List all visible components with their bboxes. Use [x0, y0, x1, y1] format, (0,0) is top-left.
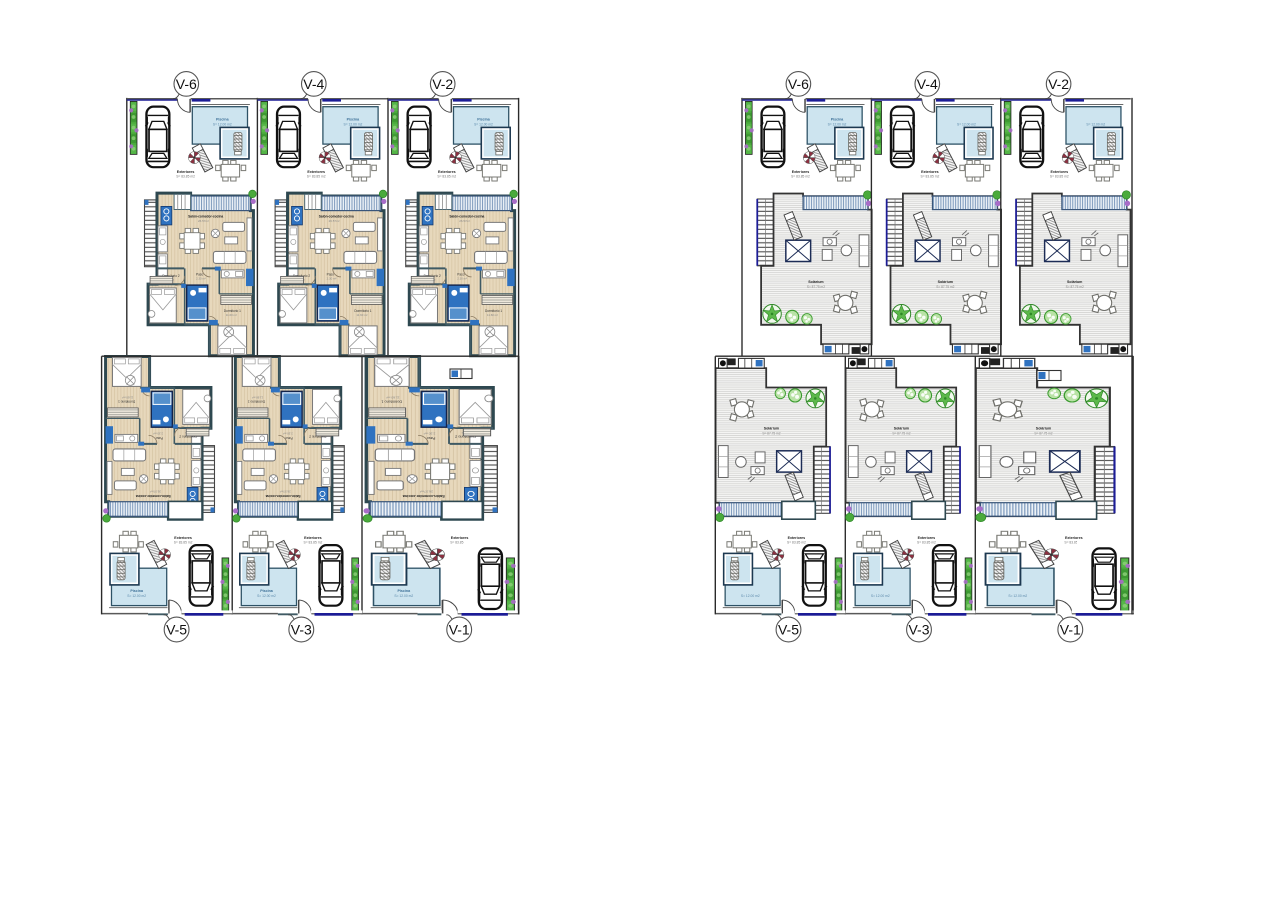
svg-text:S= 83.85 m2: S= 83.85 m2 — [174, 541, 193, 545]
svg-text:V-1: V-1 — [449, 622, 470, 638]
svg-text:V-1: V-1 — [1060, 622, 1081, 638]
svg-text:S= 12.00 m2: S= 12.00 m2 — [741, 594, 760, 598]
svg-text:Exteriores: Exteriores — [921, 170, 939, 174]
svg-text:S= 87.75 m2: S= 87.75 m2 — [1034, 431, 1052, 435]
svg-text:S= 83.85 m2: S= 83.85 m2 — [921, 175, 940, 179]
svg-text:Solárium: Solárium — [764, 426, 779, 430]
svg-text:S= 12.00 m2: S= 12.00 m2 — [828, 123, 847, 127]
svg-text:Exteriores: Exteriores — [174, 536, 192, 540]
svg-text:Piscina: Piscina — [260, 589, 274, 593]
svg-text:Solárium: Solárium — [938, 280, 953, 284]
svg-text:S= 12.00 m2: S= 12.00 m2 — [474, 123, 493, 127]
svg-text:V-4: V-4 — [303, 76, 324, 92]
svg-text:Piscina: Piscina — [130, 589, 144, 593]
svg-text:S= 87.75 m2: S= 87.75 m2 — [762, 431, 780, 435]
svg-text:S= 83.85 m2: S= 83.85 m2 — [791, 175, 810, 179]
svg-text:Piscina: Piscina — [831, 118, 845, 122]
svg-text:S= 83.85 m2: S= 83.85 m2 — [176, 175, 195, 179]
svg-text:Solárium: Solárium — [894, 426, 909, 430]
svg-text:V-5: V-5 — [778, 622, 799, 638]
svg-text:S= 12.00 m2: S= 12.00 m2 — [871, 594, 890, 598]
svg-text:S= 12.00 m2: S= 12.00 m2 — [1008, 594, 1027, 598]
svg-text:Piscina: Piscina — [347, 118, 361, 122]
svg-text:Piscina: Piscina — [477, 118, 491, 122]
svg-text:S= 12.00 m2: S= 12.00 m2 — [127, 594, 146, 598]
svg-text:Solárium: Solárium — [1036, 426, 1051, 430]
svg-text:S= 87.75 m2: S= 87.75 m2 — [936, 285, 954, 289]
svg-text:V-5: V-5 — [166, 622, 187, 638]
svg-text:Exteriores: Exteriores — [918, 536, 936, 540]
svg-text:S= 83.85 m2: S= 83.85 m2 — [1050, 175, 1069, 179]
svg-text:S= 83.85 m2: S= 83.85 m2 — [304, 541, 323, 545]
svg-text:S= 12.00 m2: S= 12.00 m2 — [344, 123, 363, 127]
svg-text:Exteriores: Exteriores — [304, 536, 322, 540]
svg-text:S= 83.85 m2: S= 83.85 m2 — [307, 175, 326, 179]
svg-text:S= 87.75 m2: S= 87.75 m2 — [892, 431, 910, 435]
svg-text:S= 87.75 m2: S= 87.75 m2 — [807, 285, 825, 289]
svg-text:V-3: V-3 — [291, 622, 312, 638]
svg-text:Solárium: Solárium — [1067, 280, 1082, 284]
svg-text:S= 83.85 m2: S= 83.85 m2 — [437, 175, 456, 179]
svg-text:V-6: V-6 — [176, 76, 197, 92]
svg-text:S= 12.00 m2: S= 12.00 m2 — [213, 123, 232, 127]
svg-text:S= 12.00 m2: S= 12.00 m2 — [957, 123, 976, 127]
svg-text:Exteriores: Exteriores — [1051, 170, 1069, 174]
svg-text:S= 12.00 m2: S= 12.00 m2 — [257, 594, 276, 598]
svg-text:V-2: V-2 — [1048, 76, 1069, 92]
svg-text:Solárium: Solárium — [808, 280, 823, 284]
svg-text:V-6: V-6 — [788, 76, 809, 92]
svg-text:Piscina: Piscina — [398, 589, 412, 593]
svg-text:S= 87.75 m2: S= 87.75 m2 — [1066, 285, 1084, 289]
svg-text:S= 83.85 m2: S= 83.85 m2 — [787, 541, 806, 545]
svg-text:Exteriores: Exteriores — [788, 536, 806, 540]
svg-text:V-2: V-2 — [432, 76, 453, 92]
svg-text:Exteriores: Exteriores — [177, 170, 195, 174]
svg-text:Exteriores: Exteriores — [438, 170, 456, 174]
svg-text:Exteriores: Exteriores — [307, 170, 325, 174]
svg-text:V-3: V-3 — [908, 622, 929, 638]
svg-text:V-4: V-4 — [917, 76, 938, 92]
svg-text:S= 83.85 m2: S= 83.85 m2 — [917, 541, 936, 545]
svg-text:S= 12.00 m2: S= 12.00 m2 — [1086, 123, 1105, 127]
svg-text:S= 12.00 m2: S= 12.00 m2 — [394, 594, 413, 598]
svg-text:Piscina: Piscina — [216, 118, 230, 122]
svg-text:Exteriores: Exteriores — [792, 170, 810, 174]
